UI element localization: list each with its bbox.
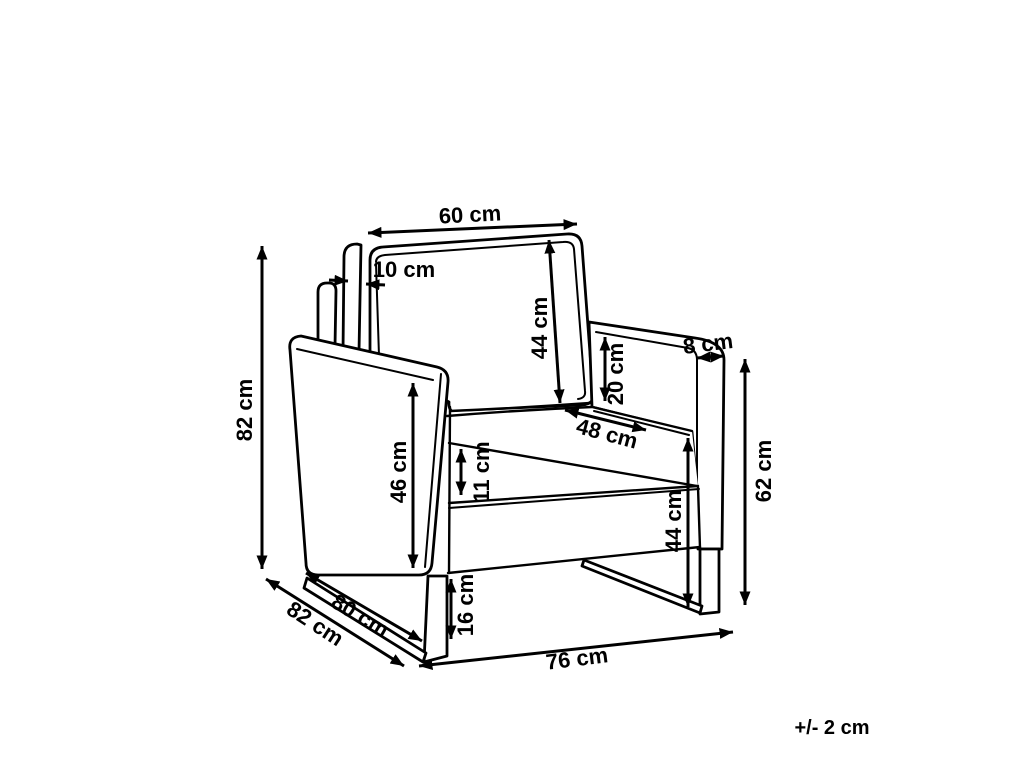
- dim-label-leg-clearance: 16 cm: [453, 574, 478, 636]
- outer-back-shell-edge: [343, 244, 361, 352]
- dim-label-armrest-width: 8 cm: [682, 328, 735, 359]
- left-leg-post: [424, 576, 447, 662]
- dim-label-backrest-thickness: 10 cm: [373, 257, 435, 282]
- dim-label-side-panel-height: 46 cm: [386, 441, 411, 503]
- dim-label-armrest-height: 62 cm: [751, 440, 776, 502]
- dim-label-overall-height: 82 cm: [232, 379, 257, 441]
- dim-arrow-backrest-thickness-left: [329, 280, 348, 281]
- armchair-drawing: 60 cm 10 cm 44 cm 20 cm 8 cm 82 cm 46 cm…: [0, 0, 1024, 768]
- left-arm: [290, 336, 448, 575]
- dim-arrow-backrest-thickness-right: [366, 284, 385, 285]
- armchair-dimension-diagram: 60 cm 10 cm 44 cm 20 cm 8 cm 82 cm 46 cm…: [0, 0, 1024, 768]
- right-leg-runner: [582, 560, 702, 613]
- dim-label-backrest-height: 44 cm: [527, 297, 552, 359]
- dim-label-seat-height: 44 cm: [661, 490, 686, 552]
- dim-label-overall-width: 76 cm: [544, 642, 609, 674]
- dim-label-back-width: 60 cm: [438, 200, 502, 228]
- dim-label-backrest-above-armrest: 20 cm: [603, 343, 628, 405]
- right-leg-post: [700, 549, 719, 614]
- tolerance-note: +/- 2 cm: [794, 717, 869, 739]
- left-arm-back-edge: [318, 283, 336, 346]
- dim-label-seat-cushion-thickness: 11 cm: [469, 441, 494, 502]
- base-left-corner-edge: [449, 407, 450, 573]
